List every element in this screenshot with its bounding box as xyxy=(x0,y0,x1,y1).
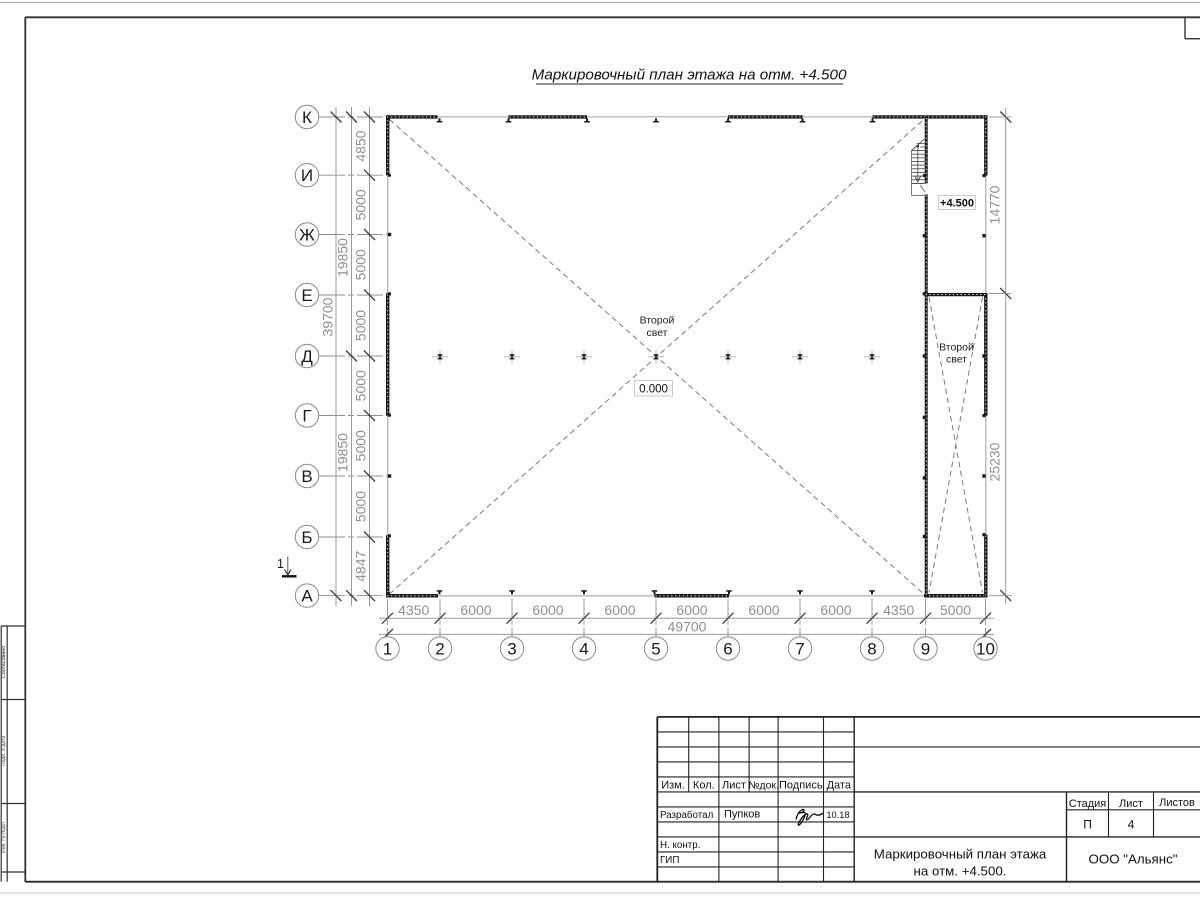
svg-text:4: 4 xyxy=(1128,818,1135,832)
svg-text:ГИП: ГИП xyxy=(660,855,679,866)
svg-text:5: 5 xyxy=(651,640,660,659)
svg-text:В: В xyxy=(301,467,312,486)
svg-text:10: 10 xyxy=(976,640,995,659)
svg-text:5000: 5000 xyxy=(353,430,369,461)
svg-text:6000: 6000 xyxy=(604,602,635,618)
svg-text:Г: Г xyxy=(302,407,311,426)
svg-text:5000: 5000 xyxy=(353,370,369,401)
svg-text:19850: 19850 xyxy=(335,238,351,277)
svg-text:5000: 5000 xyxy=(353,491,369,522)
svg-text:14770: 14770 xyxy=(987,185,1003,224)
svg-text:0.000: 0.000 xyxy=(639,383,668,395)
svg-text:свет: свет xyxy=(946,354,967,366)
svg-text:А: А xyxy=(301,587,313,606)
svg-text:Подпись: Подпись xyxy=(779,779,823,791)
svg-text:19850: 19850 xyxy=(335,433,351,472)
svg-text:Д: Д xyxy=(301,347,313,366)
svg-text:К: К xyxy=(302,108,312,127)
svg-text:4350: 4350 xyxy=(398,602,429,618)
svg-text:Пупков: Пупков xyxy=(724,809,760,821)
svg-text:5000: 5000 xyxy=(353,189,369,220)
svg-text:1: 1 xyxy=(383,640,392,659)
svg-text:Маркировочный план этажа: Маркировочный план этажа xyxy=(874,847,1047,862)
svg-text:Дата: Дата xyxy=(827,779,852,791)
svg-text:свет: свет xyxy=(646,327,667,339)
svg-text:4850: 4850 xyxy=(353,130,369,161)
svg-text:на отм. +4.500.: на отм. +4.500. xyxy=(914,864,1007,879)
svg-text:4: 4 xyxy=(579,640,588,659)
svg-text:И: И xyxy=(301,166,313,185)
svg-text:5000: 5000 xyxy=(353,310,369,341)
svg-text:6000: 6000 xyxy=(820,602,851,618)
svg-text:2: 2 xyxy=(435,640,444,659)
svg-text:Стадия: Стадия xyxy=(1069,798,1107,810)
svg-text:6000: 6000 xyxy=(676,602,707,618)
svg-text:Е: Е xyxy=(301,286,312,305)
svg-text:П: П xyxy=(1083,818,1092,832)
svg-text:Инв. № подл.: Инв. № подл. xyxy=(1,821,7,853)
svg-text:Согласовано: Согласовано xyxy=(1,646,7,678)
svg-text:Разработал: Разработал xyxy=(660,810,714,821)
svg-text:39700: 39700 xyxy=(320,297,336,336)
svg-text:Ж: Ж xyxy=(299,226,315,245)
svg-text:4847: 4847 xyxy=(353,551,369,582)
svg-text:6000: 6000 xyxy=(532,602,563,618)
svg-text:6: 6 xyxy=(723,640,732,659)
svg-text:+4.500: +4.500 xyxy=(940,197,974,209)
svg-text:Б: Б xyxy=(301,528,312,547)
svg-text:5000: 5000 xyxy=(940,602,971,618)
svg-text:№док.: №док. xyxy=(748,780,778,791)
svg-text:Лист: Лист xyxy=(1119,798,1143,810)
svg-text:25230: 25230 xyxy=(987,442,1003,481)
svg-text:3: 3 xyxy=(507,640,516,659)
svg-text:49700: 49700 xyxy=(668,619,707,635)
svg-text:5000: 5000 xyxy=(353,249,369,280)
svg-text:1: 1 xyxy=(277,557,284,571)
svg-text:Второй: Второй xyxy=(939,342,974,354)
svg-text:Маркировочный план этажа на от: Маркировочный план этажа на отм. +4.500 xyxy=(532,67,847,84)
svg-text:6000: 6000 xyxy=(748,602,779,618)
svg-text:Второй: Второй xyxy=(640,315,675,327)
svg-text:8: 8 xyxy=(867,640,876,659)
svg-text:6000: 6000 xyxy=(460,602,491,618)
svg-text:10.18: 10.18 xyxy=(826,810,849,820)
svg-text:Листов: Листов xyxy=(1159,797,1195,809)
svg-text:4350: 4350 xyxy=(883,602,914,618)
svg-text:9: 9 xyxy=(921,640,930,659)
svg-text:Подп. и дата: Подп. и дата xyxy=(1,736,7,767)
svg-text:Лист: Лист xyxy=(722,779,746,791)
svg-text:Изм.: Изм. xyxy=(661,779,685,791)
svg-text:ООО "Альянс": ООО "Альянс" xyxy=(1089,852,1178,867)
svg-text:Н. контр.: Н. контр. xyxy=(660,840,700,851)
svg-text:7: 7 xyxy=(795,640,804,659)
svg-text:Кол.: Кол. xyxy=(693,779,715,791)
